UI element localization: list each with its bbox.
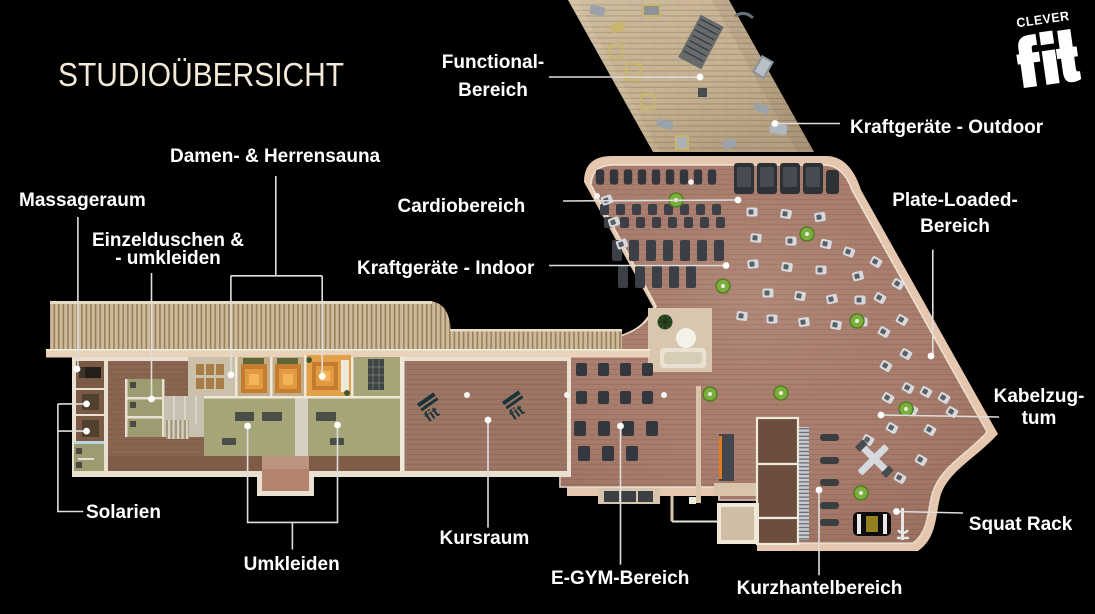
svg-text:CLEVER: CLEVER bbox=[1016, 9, 1071, 31]
